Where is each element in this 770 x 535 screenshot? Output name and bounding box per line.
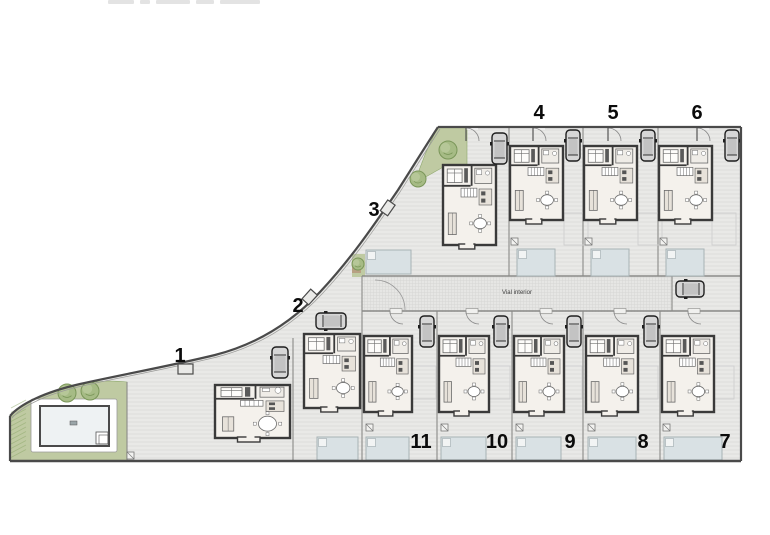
unit-9-pool (516, 437, 561, 460)
unit-2-label: 2 (292, 295, 303, 317)
unit-7-house (662, 336, 714, 416)
pool-ladder-icon (70, 421, 77, 425)
unit-4-house (510, 146, 563, 224)
road-vial-interior: Vial interior (362, 276, 672, 312)
unit-9-house (514, 336, 564, 416)
unit-1-label: 1 (174, 345, 185, 367)
unit-6-label: 6 (691, 102, 702, 124)
unit-3-house (443, 165, 496, 249)
unit-9-label: 9 (564, 431, 575, 453)
unit-10-house (439, 336, 489, 416)
car-icon (723, 130, 741, 161)
car-icon (492, 316, 510, 347)
unit-2-house (304, 334, 360, 412)
car-icon (676, 279, 704, 299)
site-plan-page: Vial interior1234567891011 (0, 0, 770, 535)
car-icon (270, 347, 290, 378)
unit-11-label: 11 (410, 431, 431, 453)
unit-6-pool (666, 249, 704, 276)
tree-icon (352, 258, 364, 270)
car-icon (564, 130, 582, 161)
unit-3-pool (366, 250, 411, 274)
unit-8-label: 8 (637, 431, 648, 453)
communal-pool (31, 399, 117, 452)
unit-4-pool (517, 249, 555, 276)
car-icon (642, 316, 660, 347)
car-icon (565, 316, 583, 347)
unit-1-house (215, 385, 290, 442)
car-icon (316, 311, 346, 331)
unit-8-pool (588, 437, 636, 460)
road-label: Vial interior (502, 290, 532, 296)
tree-icon (81, 382, 99, 400)
unit-8-house (586, 336, 638, 416)
unit-7-label: 7 (719, 431, 730, 453)
unit-7-pool (664, 437, 722, 460)
unit-5-house (584, 146, 637, 224)
site-plan-svg: Vial interior1234567891011 (0, 0, 770, 535)
unit-10-pool (441, 437, 486, 460)
unit-10-label: 10 (486, 431, 508, 453)
unit-3-label: 3 (368, 199, 379, 221)
car-icon (639, 130, 657, 161)
unit-11-pool (366, 437, 409, 460)
unit-4-label: 4 (533, 102, 545, 124)
car-icon (418, 316, 436, 347)
unit-6-house (659, 146, 712, 224)
cropped-header-marks (108, 0, 288, 5)
unit-2-pool (317, 437, 358, 460)
unit-5-label: 5 (607, 102, 618, 124)
unit-5-pool (591, 249, 629, 276)
unit-11-house (364, 336, 412, 416)
car-icon (490, 133, 509, 164)
tree-icon (410, 171, 426, 187)
tree-icon (439, 141, 457, 159)
